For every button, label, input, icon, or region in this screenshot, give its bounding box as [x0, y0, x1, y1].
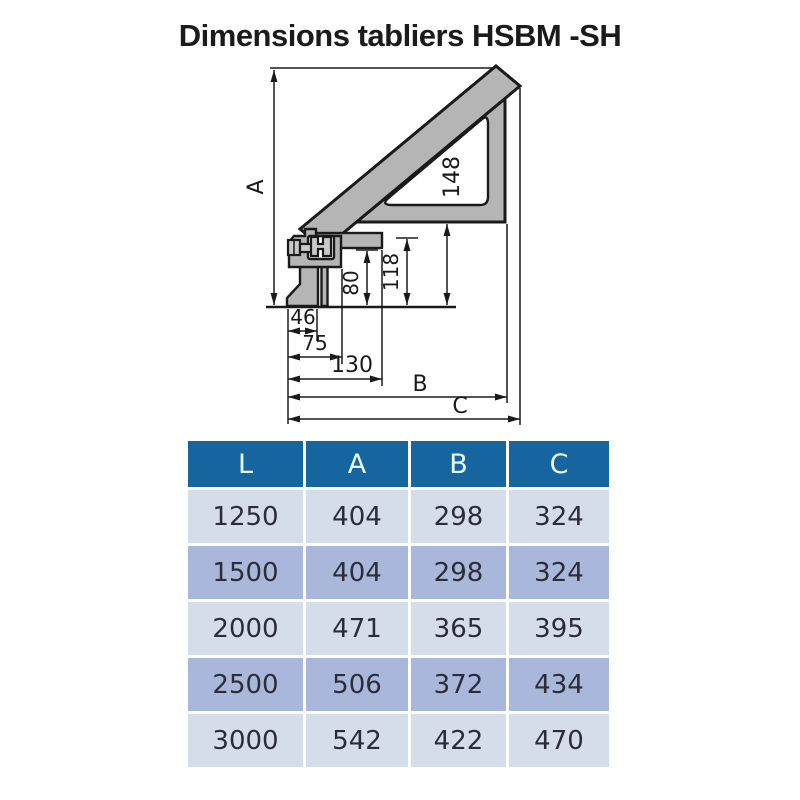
cell-r3-a: 506 [306, 658, 408, 711]
cell-r1-l: 1500 [188, 546, 303, 599]
page: Dimensions tabliers HSBM -SH [0, 0, 800, 800]
dim-a-label: A [244, 179, 269, 194]
dimension-80: 80 [339, 250, 378, 305]
dim-c-label: C [452, 394, 467, 419]
dim-75-label: 75 [302, 331, 327, 355]
cell-r4-b: 422 [411, 714, 506, 767]
leg-foot [287, 262, 318, 306]
cell-r4-a: 542 [306, 714, 408, 767]
cell-r1-b: 298 [411, 546, 506, 599]
dimension-148: 148 [440, 156, 465, 305]
cell-r3-l: 2500 [188, 658, 303, 711]
cell-r3-b: 372 [411, 658, 506, 711]
dimension-118: 118 [379, 238, 418, 305]
cell-r2-l: 2000 [188, 602, 303, 655]
dim-148-label: 148 [440, 156, 465, 198]
technical-drawing: A 148 118 80 46 [0, 0, 800, 438]
dim-46-label: 46 [290, 305, 315, 329]
cell-r0-l: 1250 [188, 490, 303, 543]
cell-r2-a: 471 [306, 602, 408, 655]
cell-r4-c: 470 [509, 714, 609, 767]
dim-130-label: 130 [331, 353, 373, 378]
cell-r0-c: 324 [509, 490, 609, 543]
column-header-b: B [411, 441, 506, 487]
cell-r4-l: 3000 [188, 714, 303, 767]
cell-r2-c: 395 [509, 602, 609, 655]
shutter-profile [287, 66, 520, 306]
cell-r3-c: 434 [509, 658, 609, 711]
cell-r1-a: 404 [306, 546, 408, 599]
dimensions-table: LABC125040429832415004042983242000471365… [188, 441, 609, 767]
cell-r2-b: 365 [411, 602, 506, 655]
column-header-c: C [509, 441, 609, 487]
cell-r0-a: 404 [306, 490, 408, 543]
cell-r0-b: 298 [411, 490, 506, 543]
dim-b-label: B [412, 372, 427, 397]
cell-r1-c: 324 [509, 546, 609, 599]
column-header-l: L [188, 441, 303, 487]
column-header-a: A [306, 441, 408, 487]
